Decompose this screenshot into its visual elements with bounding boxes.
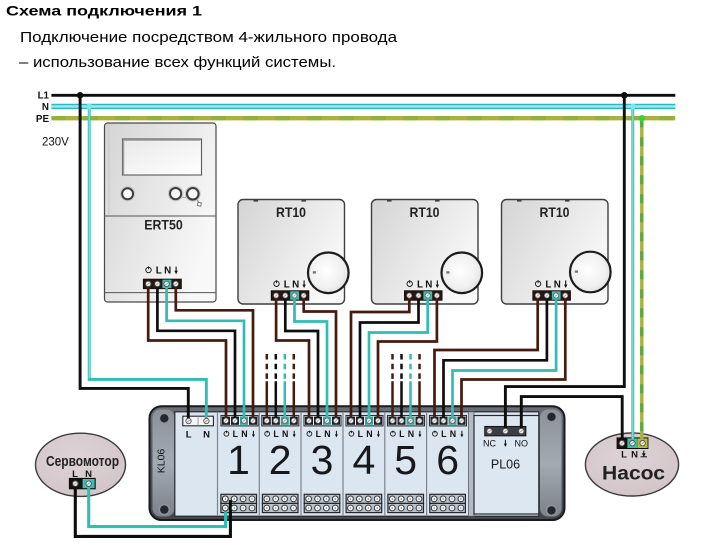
svg-text:6: 6 [436,437,459,483]
svg-text:4: 4 [352,437,375,483]
svg-text:Схема подключения 1: Схема подключения 1 [6,4,202,20]
svg-text:NO: NO [515,439,529,449]
svg-text:PL06: PL06 [491,458,520,472]
svg-text:NC: NC [483,439,496,449]
svg-text:1: 1 [227,437,250,483]
svg-text:– использование всех функций с: – использование всех функций системы. [19,54,336,71]
svg-text:RT10: RT10 [410,204,440,220]
svg-text:N: N [631,450,638,461]
svg-text:RT10: RT10 [540,204,570,220]
svg-text:Сервомотор: Сервомотор [46,454,119,470]
svg-text:RT10: RT10 [276,204,306,220]
svg-text:L: L [621,450,627,461]
svg-text:L: L [186,429,192,440]
svg-text:L1: L1 [38,91,50,102]
svg-text:230V: 230V [42,137,69,149]
svg-text:ERT50: ERT50 [144,218,183,233]
svg-text:5: 5 [394,437,417,483]
svg-text:Насос: Насос [602,463,665,485]
svg-text:KL06: KL06 [156,449,168,474]
svg-text:N: N [42,102,49,113]
svg-text:Подключение посредством 4-жиль: Подключение посредством 4-жильного прово… [20,29,398,46]
svg-text:N: N [203,429,210,440]
svg-text:3: 3 [311,437,334,483]
svg-text:2: 2 [269,437,292,483]
svg-text:PE: PE [36,114,50,125]
